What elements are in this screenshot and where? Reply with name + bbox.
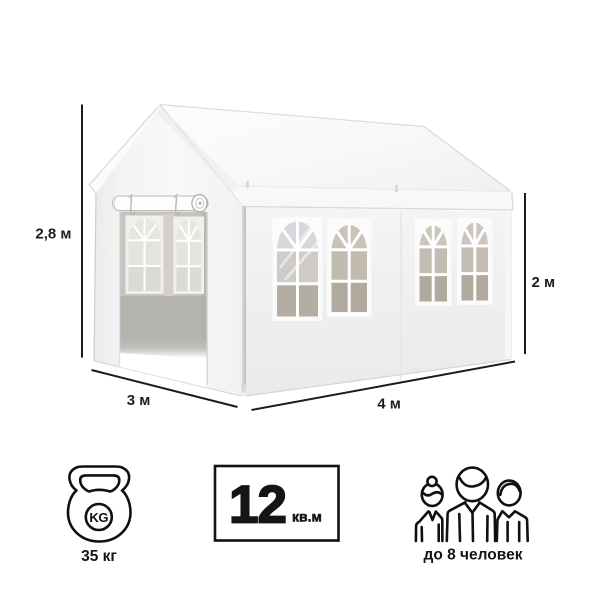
svg-text:2 м: 2 м <box>532 274 556 291</box>
svg-text:4 м: 4 м <box>377 396 401 413</box>
svg-text:12: 12 <box>229 476 286 535</box>
svg-text:2,8 м: 2,8 м <box>35 226 71 243</box>
svg-text:до 8 человек: до 8 человек <box>424 547 523 564</box>
svg-text:35 кг: 35 кг <box>81 548 117 565</box>
svg-text:KG: KG <box>89 510 108 525</box>
svg-text:кв.м: кв.м <box>292 509 322 525</box>
svg-text:3 м: 3 м <box>127 392 151 409</box>
